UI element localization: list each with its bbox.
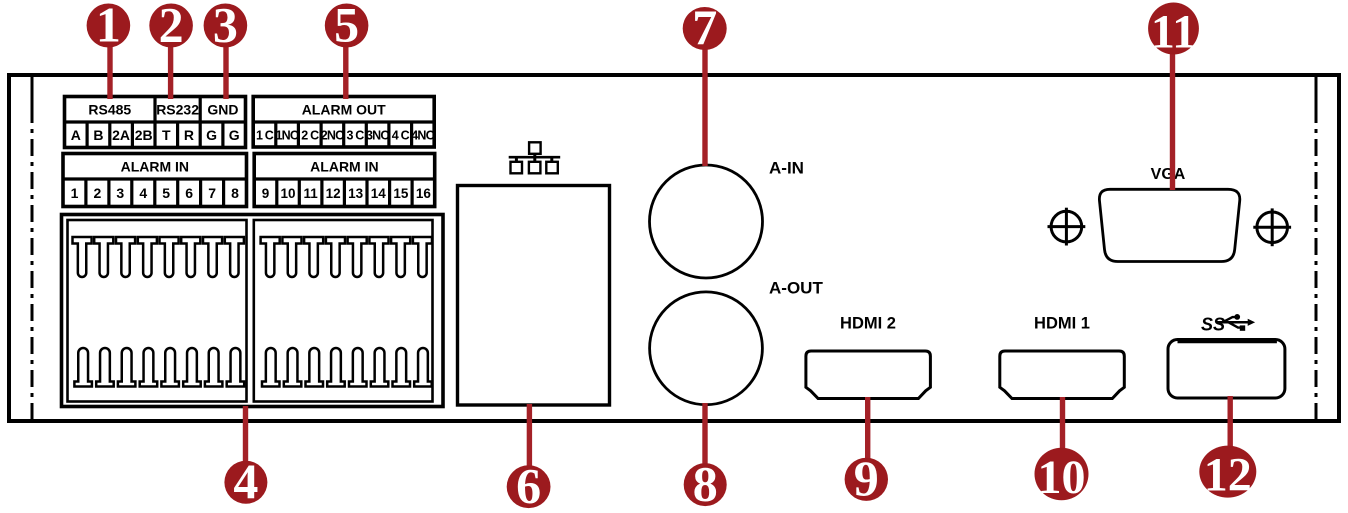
svg-text:2 C: 2 C (301, 129, 319, 143)
svg-text:A: A (71, 127, 81, 143)
svg-text:3 C: 3 C (346, 129, 364, 143)
svg-text:7: 7 (208, 185, 216, 201)
svg-text:15: 15 (393, 186, 409, 201)
svg-text:11: 11 (1151, 6, 1196, 59)
svg-text:A-OUT: A-OUT (769, 279, 823, 298)
svg-text:RS485: RS485 (88, 102, 131, 118)
svg-text:2B: 2B (135, 127, 153, 143)
svg-text:9: 9 (262, 186, 270, 201)
svg-text:11: 11 (303, 186, 318, 201)
svg-text:3NO: 3NO (366, 129, 390, 143)
svg-text:ALARM IN: ALARM IN (121, 158, 189, 174)
svg-text:SS: SS (1201, 315, 1225, 335)
svg-text:B: B (93, 127, 103, 143)
svg-text:16: 16 (416, 186, 432, 201)
svg-text:G: G (206, 127, 217, 143)
svg-text:8: 8 (231, 185, 239, 201)
svg-text:8: 8 (693, 455, 718, 511)
svg-text:5: 5 (162, 185, 170, 201)
svg-text:HDMI 2: HDMI 2 (840, 315, 896, 333)
svg-text:13: 13 (348, 186, 364, 201)
svg-text:4 C: 4 C (392, 129, 410, 143)
svg-text:6: 6 (185, 185, 193, 201)
svg-text:ALARM OUT: ALARM OUT (302, 102, 386, 118)
svg-text:10: 10 (280, 186, 295, 201)
svg-text:1NO: 1NO (275, 129, 299, 143)
svg-text:12: 12 (1204, 449, 1252, 502)
svg-text:5: 5 (334, 0, 359, 53)
svg-text:10: 10 (1038, 451, 1086, 504)
svg-text:4: 4 (139, 185, 147, 201)
svg-text:3: 3 (213, 0, 238, 53)
svg-text:3: 3 (116, 185, 124, 201)
svg-text:9: 9 (854, 450, 879, 506)
svg-text:2: 2 (94, 185, 102, 201)
svg-text:7: 7 (692, 0, 717, 55)
svg-text:VGA: VGA (1151, 166, 1186, 183)
svg-text:A-IN: A-IN (769, 159, 804, 178)
svg-text:1 C: 1 C (256, 129, 274, 143)
svg-text:4NO: 4NO (411, 129, 435, 143)
svg-text:6: 6 (516, 457, 541, 513)
svg-text:2A: 2A (112, 127, 130, 143)
svg-text:12: 12 (326, 186, 341, 201)
svg-text:HDMI 1: HDMI 1 (1034, 315, 1090, 333)
svg-text:1: 1 (96, 0, 121, 53)
svg-text:2: 2 (159, 0, 184, 53)
svg-text:1: 1 (71, 185, 79, 201)
svg-text:14: 14 (371, 186, 387, 201)
svg-text:GND: GND (207, 102, 238, 118)
svg-text:ALARM IN: ALARM IN (310, 158, 378, 174)
svg-text:4: 4 (233, 453, 258, 509)
svg-text:R: R (184, 127, 194, 143)
svg-text:T: T (162, 127, 171, 143)
svg-text:G: G (229, 127, 240, 143)
svg-text:RS232: RS232 (156, 102, 199, 118)
svg-text:2NO: 2NO (321, 129, 345, 143)
